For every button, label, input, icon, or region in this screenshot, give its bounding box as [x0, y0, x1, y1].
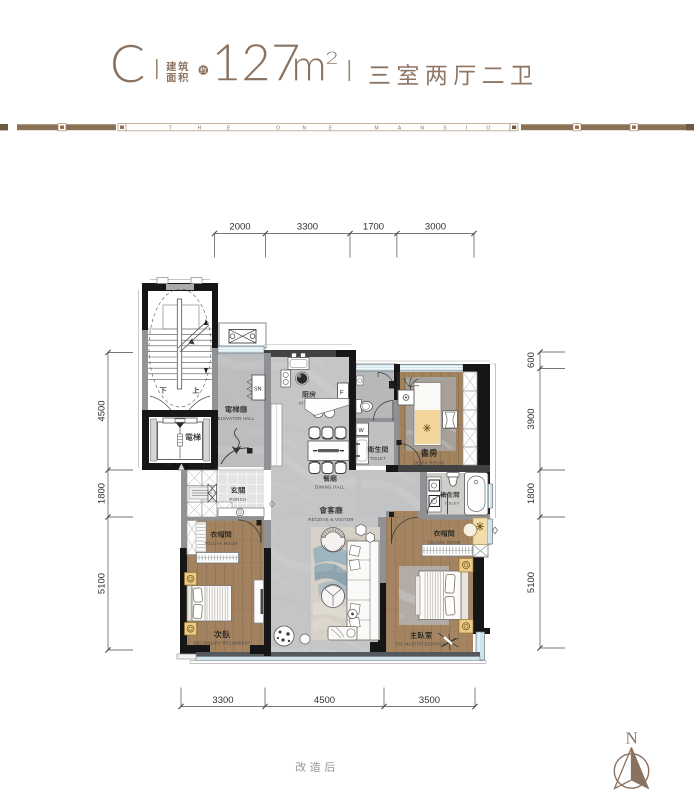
svg-text:1800: 1800: [97, 483, 108, 504]
svg-text:3300: 3300: [212, 695, 233, 706]
svg-text:TOILET: TOILET: [444, 501, 459, 506]
svg-text:3300: 3300: [297, 222, 318, 233]
svg-text:1800: 1800: [526, 483, 537, 504]
svg-text:THE: THE: [169, 125, 256, 131]
svg-text:F: F: [340, 391, 344, 397]
svg-text:TOLOAK ROOM: TOLOAK ROOM: [204, 541, 238, 546]
svg-text:4500: 4500: [97, 400, 108, 421]
svg-text:MANSION: MANSION: [375, 125, 533, 131]
svg-text:3000: 3000: [425, 222, 446, 233]
svg-text:3500: 3500: [419, 695, 440, 706]
svg-text:600: 600: [526, 352, 537, 368]
svg-text:1700: 1700: [363, 222, 384, 233]
svg-text:5100: 5100: [526, 572, 537, 593]
svg-text:ONE: ONE: [276, 125, 355, 131]
svg-text:4500: 4500: [314, 695, 335, 706]
svg-text:THE MASTER BEDROOM: THE MASTER BEDROOM: [395, 642, 448, 647]
svg-text:SN: SN: [254, 387, 262, 393]
svg-text:RECEIVE & VISITOR: RECEIVE & VISITOR: [308, 517, 354, 522]
svg-text:5100: 5100: [97, 573, 108, 594]
svg-text:SECONDARY RECUMBENT: SECONDARY RECUMBENT: [194, 641, 251, 646]
svg-text:ELEVATOR HALL: ELEVATOR HALL: [218, 416, 255, 421]
svg-text:PORCH: PORCH: [229, 497, 246, 502]
svg-text:DINING HALL: DINING HALL: [315, 485, 345, 490]
svg-text:W: W: [359, 428, 365, 434]
svg-text:3900: 3900: [526, 408, 537, 429]
svg-text:2000: 2000: [229, 222, 250, 233]
svg-text:TOILET: TOILET: [370, 456, 386, 461]
svg-text:BOOK ROOM: BOOK ROOM: [414, 461, 444, 466]
